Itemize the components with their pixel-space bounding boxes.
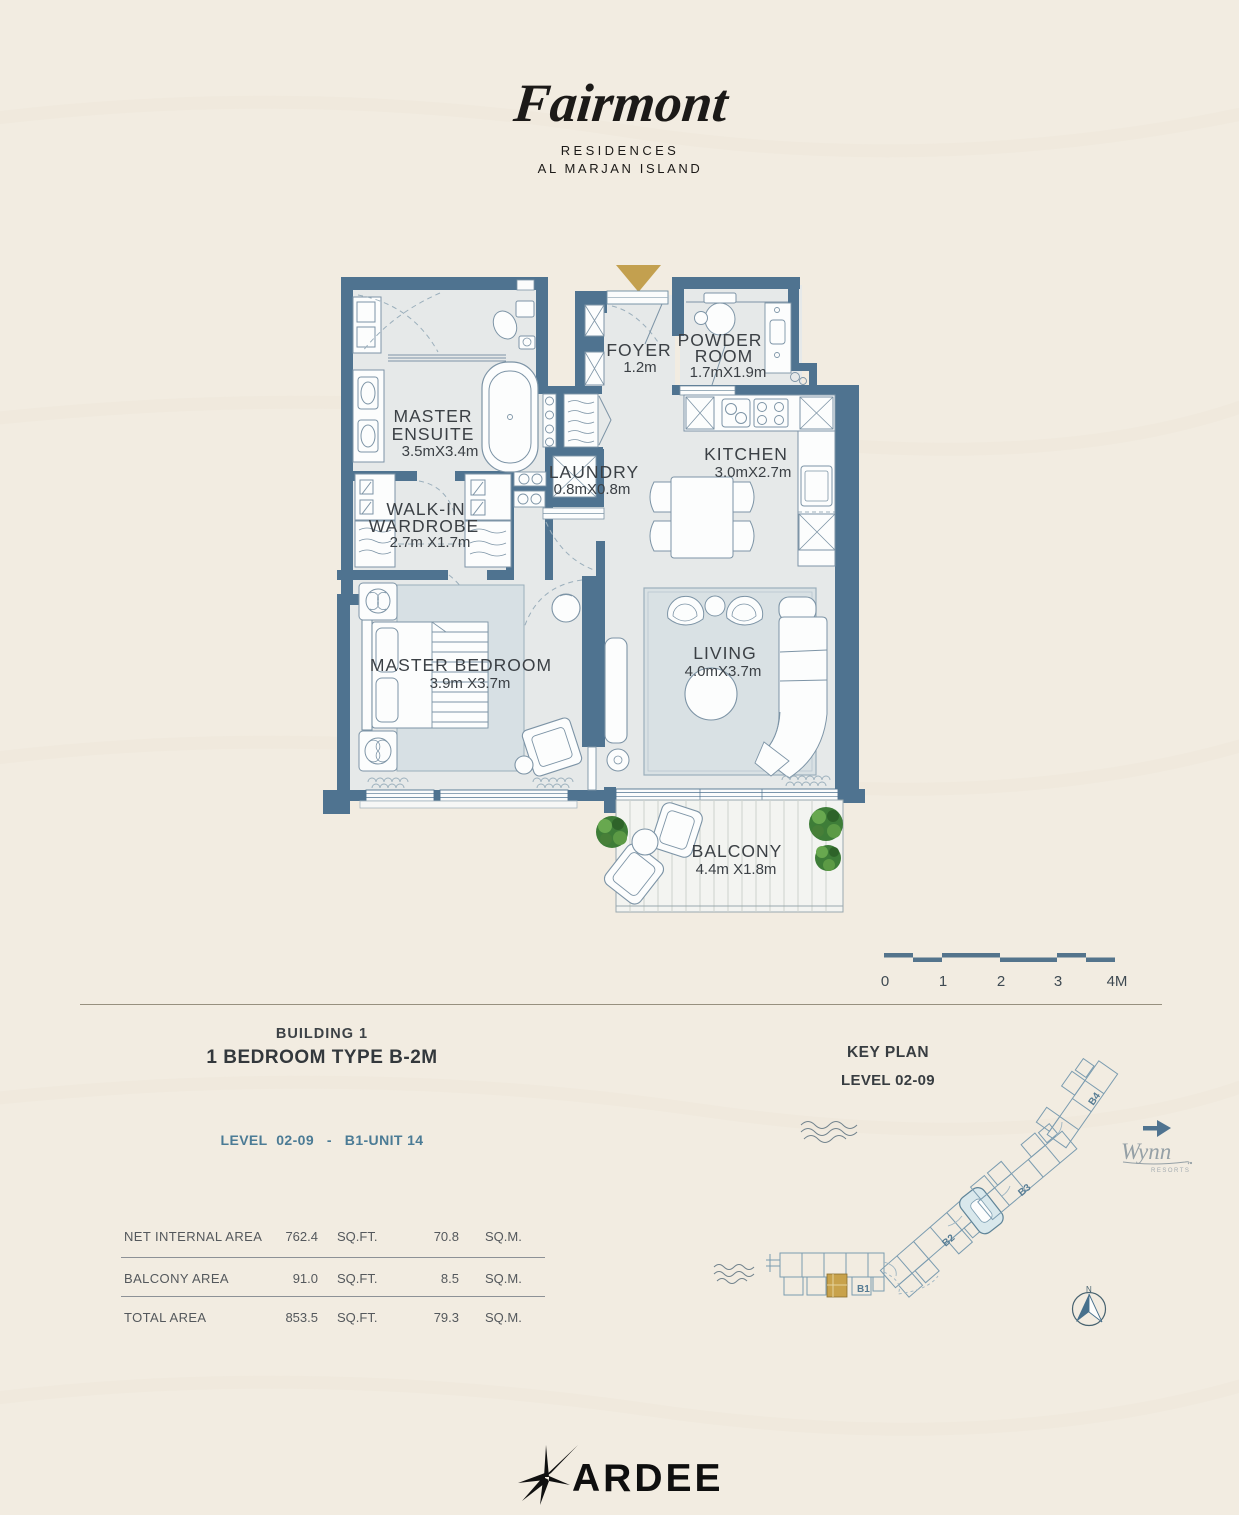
svg-text:B4: B4 (1087, 1090, 1104, 1107)
svg-text:3: 3 (1054, 973, 1062, 990)
svg-text:B3: B3 (1016, 1182, 1033, 1199)
svg-text:2: 2 (997, 973, 1005, 990)
svg-text:RESORTS: RESORTS (1151, 1168, 1190, 1174)
svg-text:0: 0 (881, 973, 889, 990)
svg-text:4M: 4M (1107, 973, 1128, 990)
svg-text:N: N (1086, 1285, 1092, 1294)
svg-text:B1: B1 (857, 1284, 870, 1295)
svg-text:ARDEE: ARDEE (572, 1457, 724, 1500)
svg-text:Wynn: Wynn (1121, 1139, 1171, 1164)
svg-text:1: 1 (939, 973, 947, 990)
